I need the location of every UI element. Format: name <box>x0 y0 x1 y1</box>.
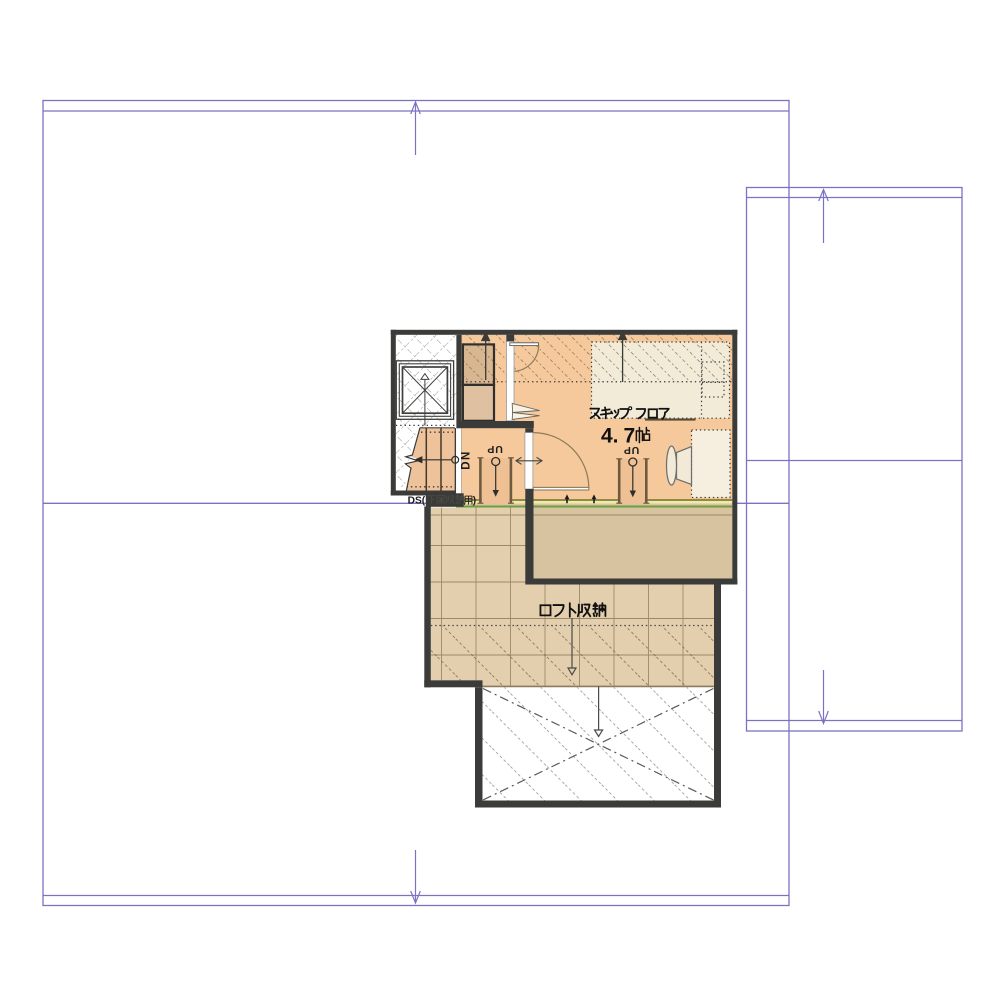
svg-text:UP: UP <box>487 443 503 455</box>
svg-text:4.: 4. <box>601 425 619 448</box>
svg-text:DS(: DS( <box>408 496 426 507</box>
svg-text:UP: UP <box>623 444 639 456</box>
svg-text:): ) <box>473 496 476 507</box>
svg-text:DN: DN <box>460 450 472 470</box>
svg-text:7: 7 <box>624 425 636 448</box>
